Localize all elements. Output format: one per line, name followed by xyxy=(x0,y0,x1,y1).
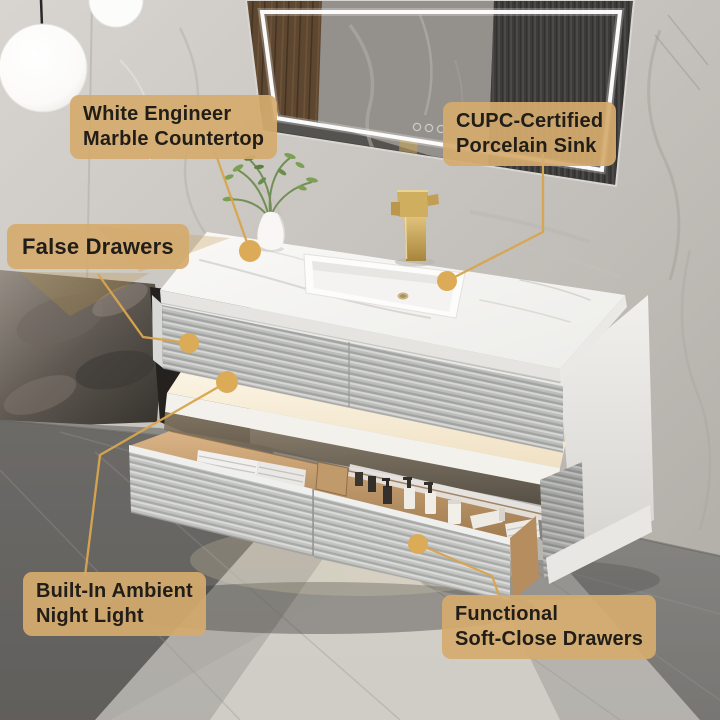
callout-dot-soft-close xyxy=(408,534,428,554)
product-annotation-image: White Engineer Marble Countertop CUPC-Ce… xyxy=(0,0,720,720)
callout-label-soft-close: Functional Soft-Close Drawers xyxy=(442,595,656,659)
faucet-handle xyxy=(427,194,439,206)
callout-dot-sink xyxy=(437,271,457,291)
callout-label-false-drawers: False Drawers xyxy=(7,224,189,269)
callout-dot-countertop xyxy=(239,240,261,262)
faucet-spout xyxy=(391,202,400,216)
callout-label-countertop: White Engineer Marble Countertop xyxy=(70,95,277,159)
callout-dot-night-light xyxy=(216,371,238,393)
callout-label-night-light: Built-In Ambient Night Light xyxy=(23,572,206,636)
callout-dot-false-drawers xyxy=(179,333,199,353)
pendant-cord xyxy=(41,0,42,26)
callout-label-sink: CUPC-Certified Porcelain Sink xyxy=(443,102,616,166)
